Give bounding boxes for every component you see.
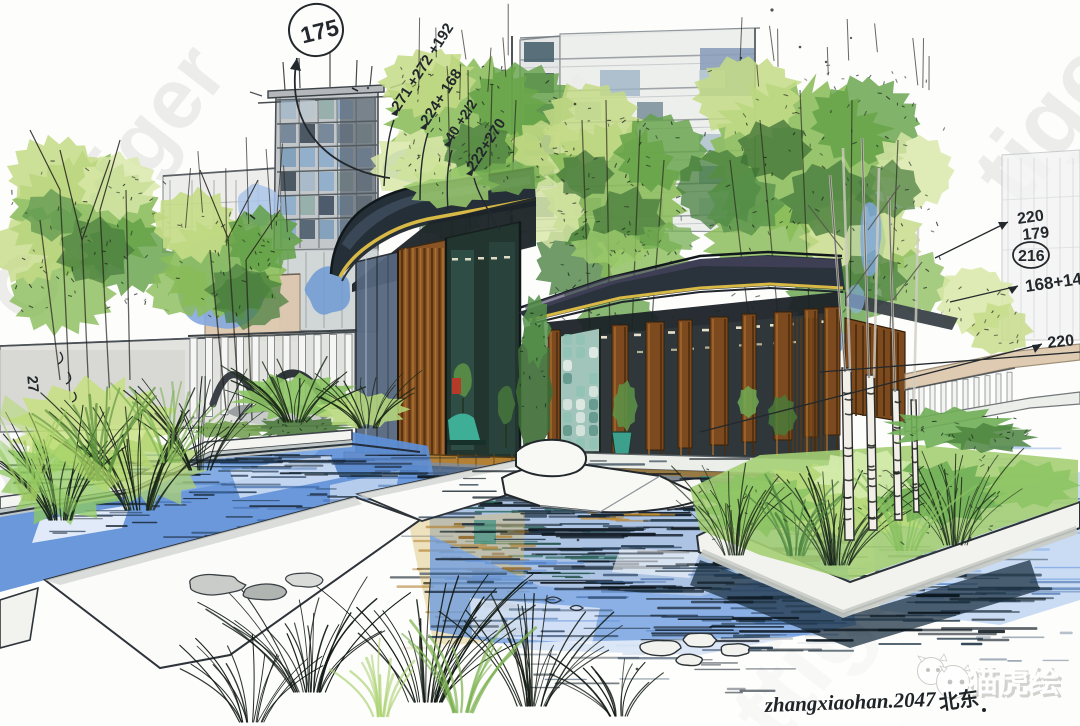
svg-text:猫虎绘: 猫虎绘 xyxy=(967,664,1060,699)
svg-text:27: 27 xyxy=(23,375,41,393)
svg-text:220: 220 xyxy=(1047,332,1075,352)
svg-text:216: 216 xyxy=(1018,248,1045,265)
svg-text:179: 179 xyxy=(1022,224,1050,244)
